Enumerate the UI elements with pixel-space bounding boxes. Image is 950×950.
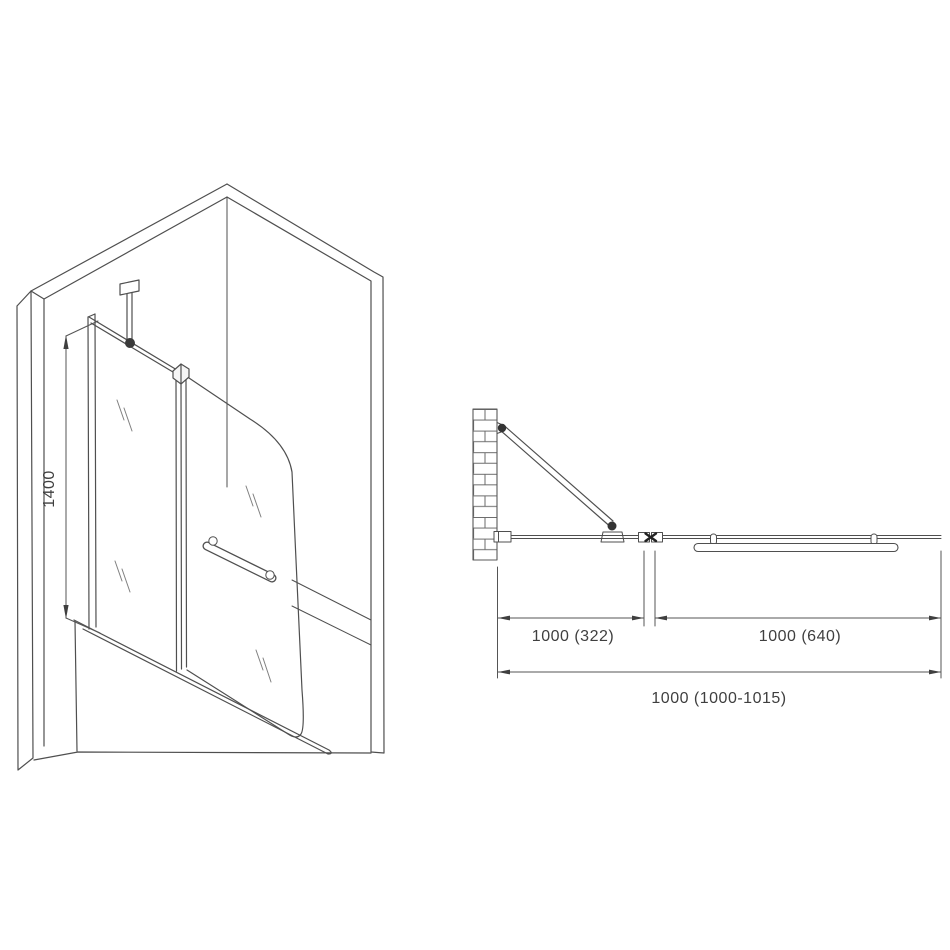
dimension-arrow-right	[632, 616, 644, 621]
fixed-panel-width-label: 1000 (322)	[532, 628, 614, 645]
bathtub-front-rim	[74, 620, 331, 754]
dimension-arrow-right	[929, 670, 941, 675]
plan-view: 1000 (322) 1000 (640) 1000 (1000-1015)	[473, 409, 941, 707]
fixed-panel	[88, 314, 178, 629]
dimension-arrow-up	[63, 335, 68, 349]
brick-wall	[473, 409, 497, 560]
dimension-arrow-left	[498, 616, 510, 621]
bathtub-left-corner	[75, 621, 77, 751]
support-bar-rod	[127, 289, 132, 340]
right-wall	[227, 184, 384, 753]
isometric-view: 1400	[17, 184, 384, 770]
glass-reflection-mark	[117, 400, 132, 431]
dimension-arrow-right	[929, 616, 941, 621]
dimension-arrow-left	[655, 616, 667, 621]
glass-reflection-mark	[256, 650, 271, 682]
dimension-fixed-panel: 1000 (322)	[498, 616, 645, 645]
dimension-overall: 1000 (1000-1015)	[498, 670, 942, 707]
towel-bar-mount	[209, 537, 217, 545]
extension-lines	[498, 551, 942, 678]
hinge-column	[173, 364, 189, 671]
height-dimension-label: 1400	[41, 470, 58, 508]
wall-profile	[494, 532, 511, 543]
towel-bar-mount	[266, 571, 274, 579]
open-door-panel	[497, 423, 624, 543]
towel-bar-body	[207, 546, 272, 578]
support-bar-wall-bracket	[120, 280, 139, 295]
glass-reflection-mark	[246, 486, 261, 517]
towel-bar-post	[871, 534, 877, 545]
dimension-door-panel: 1000 (640)	[655, 616, 941, 645]
towel-bar-body	[694, 544, 898, 552]
plan-dimensions: 1000 (322) 1000 (640) 1000 (1000-1015)	[498, 551, 942, 707]
technical-drawing: 1400	[0, 0, 950, 950]
dimension-arrow-left	[498, 670, 510, 675]
door-hinge-knob	[608, 522, 617, 531]
floor-edge	[34, 752, 371, 760]
support-bar-hinge-knob	[125, 338, 135, 348]
glass-edge-lines	[663, 536, 941, 539]
door-panel-edges	[500, 426, 613, 526]
glass-reflection-mark	[115, 561, 130, 592]
towel-bar-plan	[694, 534, 898, 552]
wall-hinge-knob	[498, 424, 506, 432]
height-dimension: 1400	[41, 321, 100, 633]
pivot-panel	[187, 378, 303, 737]
wall-profile-plan	[494, 532, 511, 543]
left-wall-end-slab	[17, 291, 44, 770]
panel-connector	[639, 533, 663, 543]
door-width-label: 1000 (640)	[759, 628, 841, 645]
bathtub-back-rim	[292, 580, 371, 645]
towel-bar-post	[711, 534, 717, 545]
fixed-panel-wall-profile	[88, 314, 96, 629]
drawing-canvas: 1400	[0, 0, 950, 950]
dimension-arrow-down	[63, 605, 68, 619]
room-walls	[17, 184, 384, 770]
pivot-bracket	[601, 532, 624, 542]
bathtub	[74, 580, 371, 754]
door-panel-plan	[663, 536, 941, 539]
towel-bar-isometric	[207, 537, 274, 579]
pivot-panel-outline	[187, 378, 303, 737]
wall-section	[473, 409, 497, 560]
overall-width-label: 1000 (1000-1015)	[651, 690, 786, 707]
hinge-column-profile	[176, 377, 187, 671]
